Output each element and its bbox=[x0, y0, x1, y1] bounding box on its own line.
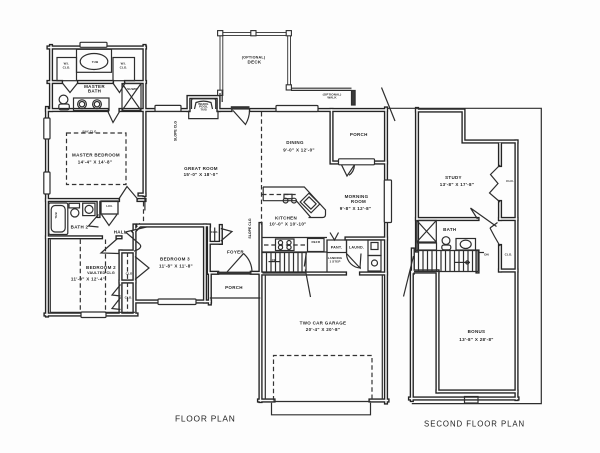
svg-text:PANT.: PANT. bbox=[331, 246, 342, 250]
svg-text:ROOM: ROOM bbox=[351, 199, 366, 204]
svg-text:BEDROOM 3: BEDROOM 3 bbox=[160, 257, 190, 262]
svg-text:SHWR: SHWR bbox=[127, 87, 137, 91]
svg-text:BONUS: BONUS bbox=[468, 329, 486, 334]
svg-text:TUB: TUB bbox=[200, 107, 207, 111]
svg-text:TUB: TUB bbox=[92, 60, 99, 64]
svg-text:BAY CLG: BAY CLG bbox=[82, 130, 97, 134]
svg-text:PORCH: PORCH bbox=[225, 285, 243, 290]
svg-text:BEDROOM 2: BEDROOM 2 bbox=[86, 265, 116, 270]
svg-text:HALL: HALL bbox=[114, 229, 127, 234]
svg-text:9'-8" X 12'-8": 9'-8" X 12'-8" bbox=[340, 206, 372, 211]
svg-text:14'-4" X 14'-8": 14'-4" X 14'-8" bbox=[78, 160, 112, 165]
svg-text:KITCHEN: KITCHEN bbox=[275, 215, 297, 220]
svg-text:BATH 2: BATH 2 bbox=[71, 224, 89, 229]
svg-text:REFR: REFR bbox=[311, 240, 320, 244]
svg-text:DINING: DINING bbox=[286, 140, 304, 145]
svg-text:MASTER BEDROOM: MASTER BEDROOM bbox=[72, 153, 120, 158]
svg-text:CLO.: CLO. bbox=[120, 66, 128, 70]
svg-text:BATH: BATH bbox=[88, 88, 101, 93]
svg-text:PORCH: PORCH bbox=[350, 132, 368, 137]
svg-text:GREAT ROOM: GREAT ROOM bbox=[184, 166, 218, 171]
svg-text:UP: UP bbox=[271, 259, 277, 263]
svg-text:CLO.: CLO. bbox=[126, 272, 134, 276]
svg-text:DECK: DECK bbox=[248, 59, 262, 64]
svg-text:CLO.: CLO. bbox=[211, 230, 219, 234]
svg-text:1 STEP: 1 STEP bbox=[329, 260, 340, 264]
svg-text:CLO.: CLO. bbox=[506, 179, 514, 183]
svg-text:15'-0" X 18'-0": 15'-0" X 18'-0" bbox=[184, 172, 218, 177]
svg-text:CLO.: CLO. bbox=[505, 253, 513, 257]
svg-text:VAULTED CLG: VAULTED CLG bbox=[87, 271, 115, 275]
svg-text:13'-8" X 28'-8": 13'-8" X 28'-8" bbox=[459, 337, 493, 342]
svg-text:SECOND FLOOR PLAN: SECOND FLOOR PLAN bbox=[424, 419, 525, 428]
svg-text:11'-0" X 12'-4": 11'-0" X 12'-4" bbox=[71, 277, 105, 282]
svg-text:WALK: WALK bbox=[327, 96, 337, 100]
svg-text:FLOOR PLAN: FLOOR PLAN bbox=[175, 414, 236, 424]
svg-text:FOYER: FOYER bbox=[227, 249, 244, 254]
svg-text:DN: DN bbox=[484, 253, 489, 257]
svg-text:CLO.: CLO. bbox=[125, 296, 133, 300]
svg-text:11'-8" X 11'-8": 11'-8" X 11'-8" bbox=[159, 263, 193, 268]
svg-text:20'-4" X 20'-8": 20'-4" X 20'-8" bbox=[306, 327, 340, 332]
svg-text:SLOPE CLG: SLOPE CLG bbox=[174, 121, 178, 142]
svg-text:STUDY: STUDY bbox=[445, 175, 462, 180]
svg-text:SLOPE CLG: SLOPE CLG bbox=[248, 218, 252, 239]
svg-text:13'-8" X 17'-8": 13'-8" X 17'-8" bbox=[440, 182, 474, 187]
svg-text:10'-0" X 10'-10": 10'-0" X 10'-10" bbox=[269, 222, 306, 227]
svg-text:BATH: BATH bbox=[443, 227, 456, 232]
svg-text:9'-0" X 12'-0": 9'-0" X 12'-0" bbox=[283, 148, 315, 153]
svg-text:LAUND.: LAUND. bbox=[349, 246, 364, 250]
svg-text:TUB: TUB bbox=[54, 212, 58, 219]
svg-text:LIN.: LIN. bbox=[106, 204, 112, 208]
svg-text:CLO.: CLO. bbox=[63, 66, 71, 70]
svg-text:TWO CAR GARAGE: TWO CAR GARAGE bbox=[300, 321, 347, 326]
